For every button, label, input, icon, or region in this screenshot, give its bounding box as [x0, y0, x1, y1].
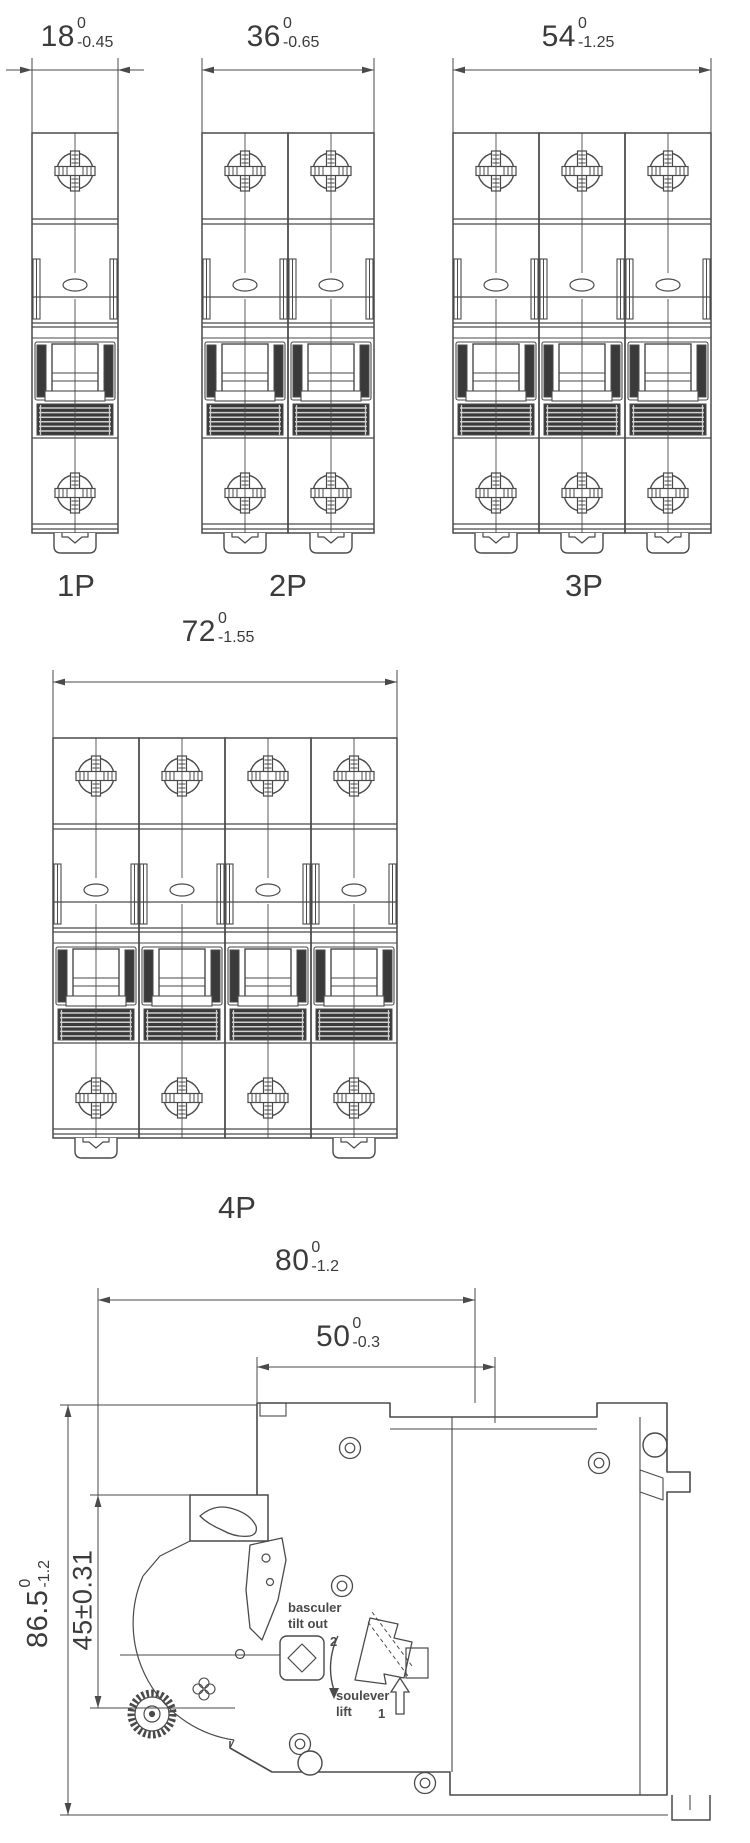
annotation-basculer: basculer: [288, 1600, 341, 1615]
dim-tolerance: 0 -0.45: [77, 16, 113, 52]
dim-value: 80: [275, 1246, 309, 1276]
dim-depth-front: 50 0 -0.3: [316, 1322, 380, 1358]
dim-value: 36: [247, 22, 281, 52]
dim-tol-lower: -1.2: [37, 1560, 54, 1588]
dim-tolerance: 0 -1.2: [311, 1240, 339, 1276]
view-label-2p: 2P: [269, 570, 307, 601]
dim-width-1p: 18 0 -0.45: [41, 22, 114, 58]
dim-value: 18: [41, 22, 75, 52]
annotation-step-1: 1: [378, 1706, 385, 1721]
dim-tol-lower: -0.45: [77, 35, 113, 52]
annotation-step-2: 2: [330, 1634, 337, 1649]
dim-tol-upper: 0: [283, 16, 319, 33]
dim-tol-upper: 0: [352, 1316, 380, 1333]
dim-depth-total: 80 0 -1.2: [275, 1246, 339, 1282]
dim-value: 54: [542, 22, 576, 52]
dim-tolerance: 0 -1.25: [578, 16, 614, 52]
dim-value: 50: [316, 1322, 350, 1352]
dim-tol-upper: 0: [578, 16, 614, 33]
dim-width-4p: 72 0 -1.55: [182, 617, 255, 653]
drawing-geometry: [6, 58, 711, 1820]
dim-tol-lower: -1.25: [578, 35, 614, 52]
view-label-3p: 3P: [565, 570, 603, 601]
dim-value: 86.5: [24, 1590, 53, 1648]
dim-tolerance: 0 -0.3: [352, 1316, 380, 1352]
dim-handle-height: 45±0.31: [70, 1550, 97, 1651]
dim-tol-lower: -0.65: [283, 35, 319, 52]
dim-tol-upper: 0: [311, 1240, 339, 1257]
dim-tolerance: 0 -1.2: [18, 1560, 54, 1588]
technical-drawing-page: basculer tilt out 2 soulever lift 1 18 0…: [0, 0, 750, 1843]
dim-tol-upper: 0: [77, 16, 113, 33]
view-label-1p: 1P: [57, 570, 95, 601]
annotation-tilt-out: tilt out: [288, 1616, 328, 1631]
dim-tolerance: 0 -1.55: [218, 611, 254, 647]
side-view-annotations: basculer tilt out 2 soulever lift 1: [288, 1600, 389, 1721]
dim-height-total: 86.5 0 -1.2: [24, 1560, 60, 1648]
dim-width-2p: 36 0 -0.65: [247, 22, 320, 58]
technical-drawing-canvas: basculer tilt out 2 soulever lift 1: [0, 0, 750, 1843]
dim-tol-lower: -1.2: [311, 1259, 339, 1276]
view-label-4p: 4P: [218, 1192, 256, 1223]
dim-tolerance: 0 -0.65: [283, 16, 319, 52]
annotation-soulever: soulever: [336, 1688, 389, 1703]
dim-tol-upper: 0: [18, 1560, 35, 1588]
dim-tol-upper: 0: [218, 611, 254, 628]
dim-tol-lower: -0.3: [352, 1335, 380, 1352]
dim-tol-lower: -1.55: [218, 630, 254, 647]
dim-value: 72: [182, 617, 216, 647]
dim-value: 45±0.31: [70, 1550, 97, 1651]
annotation-lift: lift: [336, 1704, 353, 1719]
dim-width-3p: 54 0 -1.25: [542, 22, 615, 58]
